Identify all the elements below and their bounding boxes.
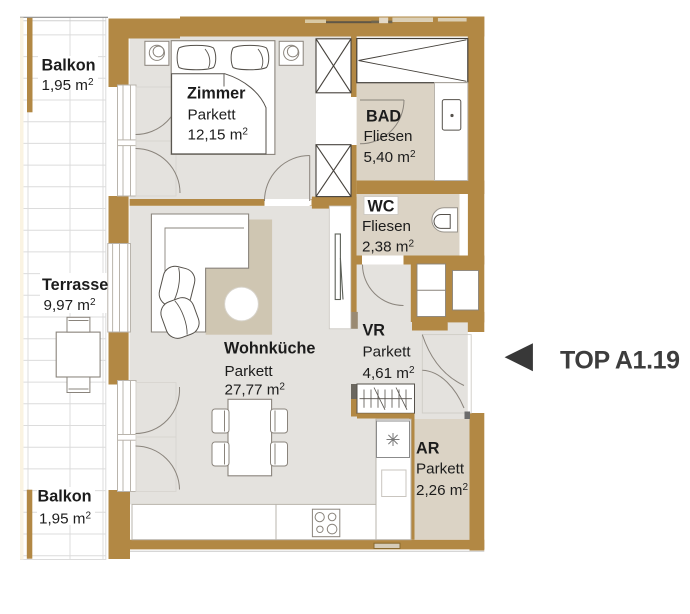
svg-text:Fliesen: Fliesen bbox=[362, 218, 411, 235]
svg-text:27,77 m2: 27,77 m2 bbox=[225, 382, 286, 399]
svg-text:Balkon: Balkon bbox=[38, 488, 92, 506]
svg-text:Terrasse: Terrasse bbox=[42, 276, 108, 294]
svg-text:AR: AR bbox=[416, 440, 440, 458]
svg-text:Parkett: Parkett bbox=[225, 363, 274, 380]
svg-text:5,40 m2: 5,40 m2 bbox=[364, 149, 416, 166]
svg-text:2,38 m2: 2,38 m2 bbox=[362, 239, 414, 256]
svg-text:Fliesen: Fliesen bbox=[364, 128, 413, 145]
svg-text:BAD: BAD bbox=[366, 108, 401, 126]
svg-text:TOP A1.19: TOP A1.19 bbox=[560, 347, 680, 375]
svg-text:4,61 m2: 4,61 m2 bbox=[363, 365, 415, 382]
svg-text:Parkett: Parkett bbox=[363, 344, 412, 361]
svg-text:Parkett: Parkett bbox=[416, 461, 465, 478]
svg-text:12,15 m2: 12,15 m2 bbox=[188, 127, 249, 144]
svg-text:Parkett: Parkett bbox=[188, 107, 237, 124]
svg-text:VR: VR bbox=[363, 322, 386, 340]
svg-text:1,95 m2: 1,95 m2 bbox=[39, 511, 91, 528]
svg-text:2,26 m2: 2,26 m2 bbox=[416, 482, 468, 499]
svg-text:Balkon: Balkon bbox=[42, 57, 96, 75]
svg-text:Wohnküche: Wohnküche bbox=[224, 340, 315, 358]
svg-text:9,97 m2: 9,97 m2 bbox=[44, 297, 96, 314]
svg-text:WC: WC bbox=[368, 198, 395, 216]
svg-text:1,95 m2: 1,95 m2 bbox=[42, 77, 94, 94]
svg-text:Zimmer: Zimmer bbox=[187, 85, 246, 103]
